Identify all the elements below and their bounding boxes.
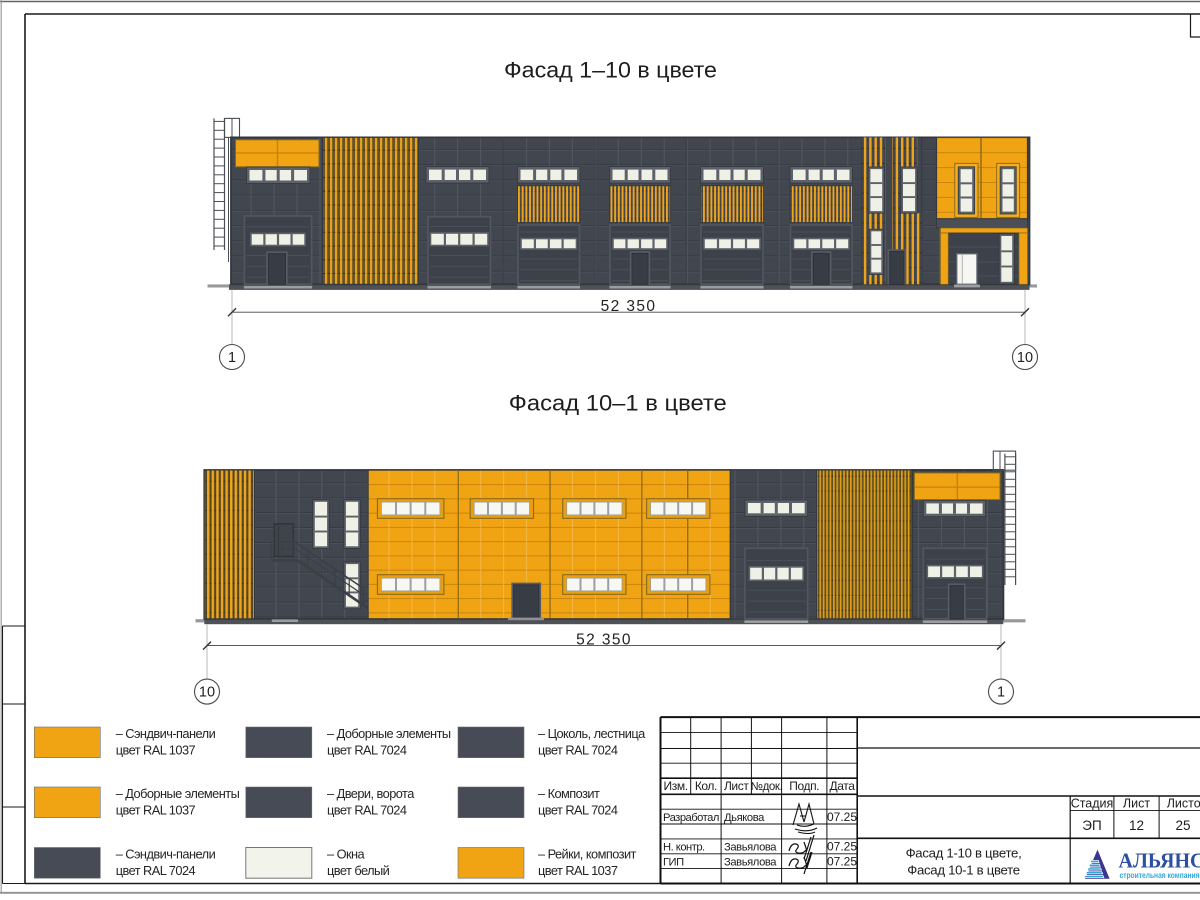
svg-text:Листов: Листов xyxy=(1167,797,1200,811)
svg-text:1: 1 xyxy=(997,685,1005,701)
svg-text:Разработал: Разработал xyxy=(663,812,719,824)
svg-text:Завьялова: Завьялова xyxy=(724,842,777,854)
svg-text:1: 1 xyxy=(228,350,236,366)
svg-text:Фасад 1–10 в цвете: Фасад 1–10 в цвете xyxy=(504,58,717,83)
svg-text:Н. контр.: Н. контр. xyxy=(663,842,705,854)
svg-text:цвет RAL 7024: цвет RAL 7024 xyxy=(327,743,407,758)
svg-text:цвет RAL 1037: цвет RAL 1037 xyxy=(538,863,618,878)
svg-text:цвет RAL 7024: цвет RAL 7024 xyxy=(538,803,618,818)
svg-text:Фасад 10–1 в цвете: Фасад 10–1 в цвете xyxy=(509,391,727,416)
svg-text:10: 10 xyxy=(199,685,215,701)
svg-text:строительная компания: строительная компания xyxy=(1120,871,1200,880)
svg-text:25: 25 xyxy=(1175,818,1190,833)
svg-text:цвет RAL 7024: цвет RAL 7024 xyxy=(116,863,196,878)
svg-text:52 350: 52 350 xyxy=(576,632,632,649)
svg-text:Завьялова: Завьялова xyxy=(724,856,777,868)
svg-text:– Сэндвич-панели: – Сэндвич-панели xyxy=(116,726,216,741)
svg-text:цвет RAL 1037: цвет RAL 1037 xyxy=(116,803,196,818)
svg-text:цвет RAL 1037: цвет RAL 1037 xyxy=(116,743,196,758)
svg-text:– Композит: – Композит xyxy=(538,786,600,801)
svg-text:Лист: Лист xyxy=(1123,797,1150,811)
svg-text:Фасад 10-1 в цвете: Фасад 10-1 в цвете xyxy=(907,863,1020,878)
svg-text:Дьякова: Дьякова xyxy=(724,812,765,824)
svg-text:№док.: №док. xyxy=(751,781,783,793)
svg-text:Лист: Лист xyxy=(724,779,749,793)
svg-text:07.25: 07.25 xyxy=(827,840,857,854)
svg-text:Стадия: Стадия xyxy=(1071,797,1114,811)
svg-text:ЭП: ЭП xyxy=(1082,818,1101,833)
svg-text:АЛЬЯНС: АЛЬЯНС xyxy=(1119,849,1200,873)
svg-text:07.25: 07.25 xyxy=(827,854,857,868)
svg-text:– Рейки, композит: – Рейки, композит xyxy=(538,847,637,862)
svg-text:Кол.: Кол. xyxy=(695,779,717,793)
svg-text:Дата: Дата xyxy=(830,779,856,793)
svg-text:12: 12 xyxy=(1129,818,1144,833)
svg-text:Изм.: Изм. xyxy=(664,779,688,793)
svg-text:– Окна: – Окна xyxy=(327,847,366,862)
svg-text:– Доборные элементы: – Доборные элементы xyxy=(116,786,240,801)
svg-text:07.25: 07.25 xyxy=(827,810,857,824)
svg-text:ГИП: ГИП xyxy=(663,856,684,868)
svg-text:– Цоколь, лестница: – Цоколь, лестница xyxy=(538,726,646,741)
svg-text:10: 10 xyxy=(1017,350,1033,366)
svg-text:Фасад 1-10 в цвете,: Фасад 1-10 в цвете, xyxy=(906,846,1022,861)
svg-text:цвет белый: цвет белый xyxy=(327,863,390,878)
svg-text:цвет RAL 7024: цвет RAL 7024 xyxy=(538,743,618,758)
svg-text:Подп.: Подп. xyxy=(789,779,819,793)
svg-text:– Сэндвич-панели: – Сэндвич-панели xyxy=(116,847,216,862)
svg-text:– Доборные элементы: – Доборные элементы xyxy=(327,726,451,741)
svg-text:цвет RAL 7024: цвет RAL 7024 xyxy=(327,803,407,818)
svg-text:– Двери, ворота: – Двери, ворота xyxy=(327,786,415,801)
svg-text:52 350: 52 350 xyxy=(601,298,657,315)
